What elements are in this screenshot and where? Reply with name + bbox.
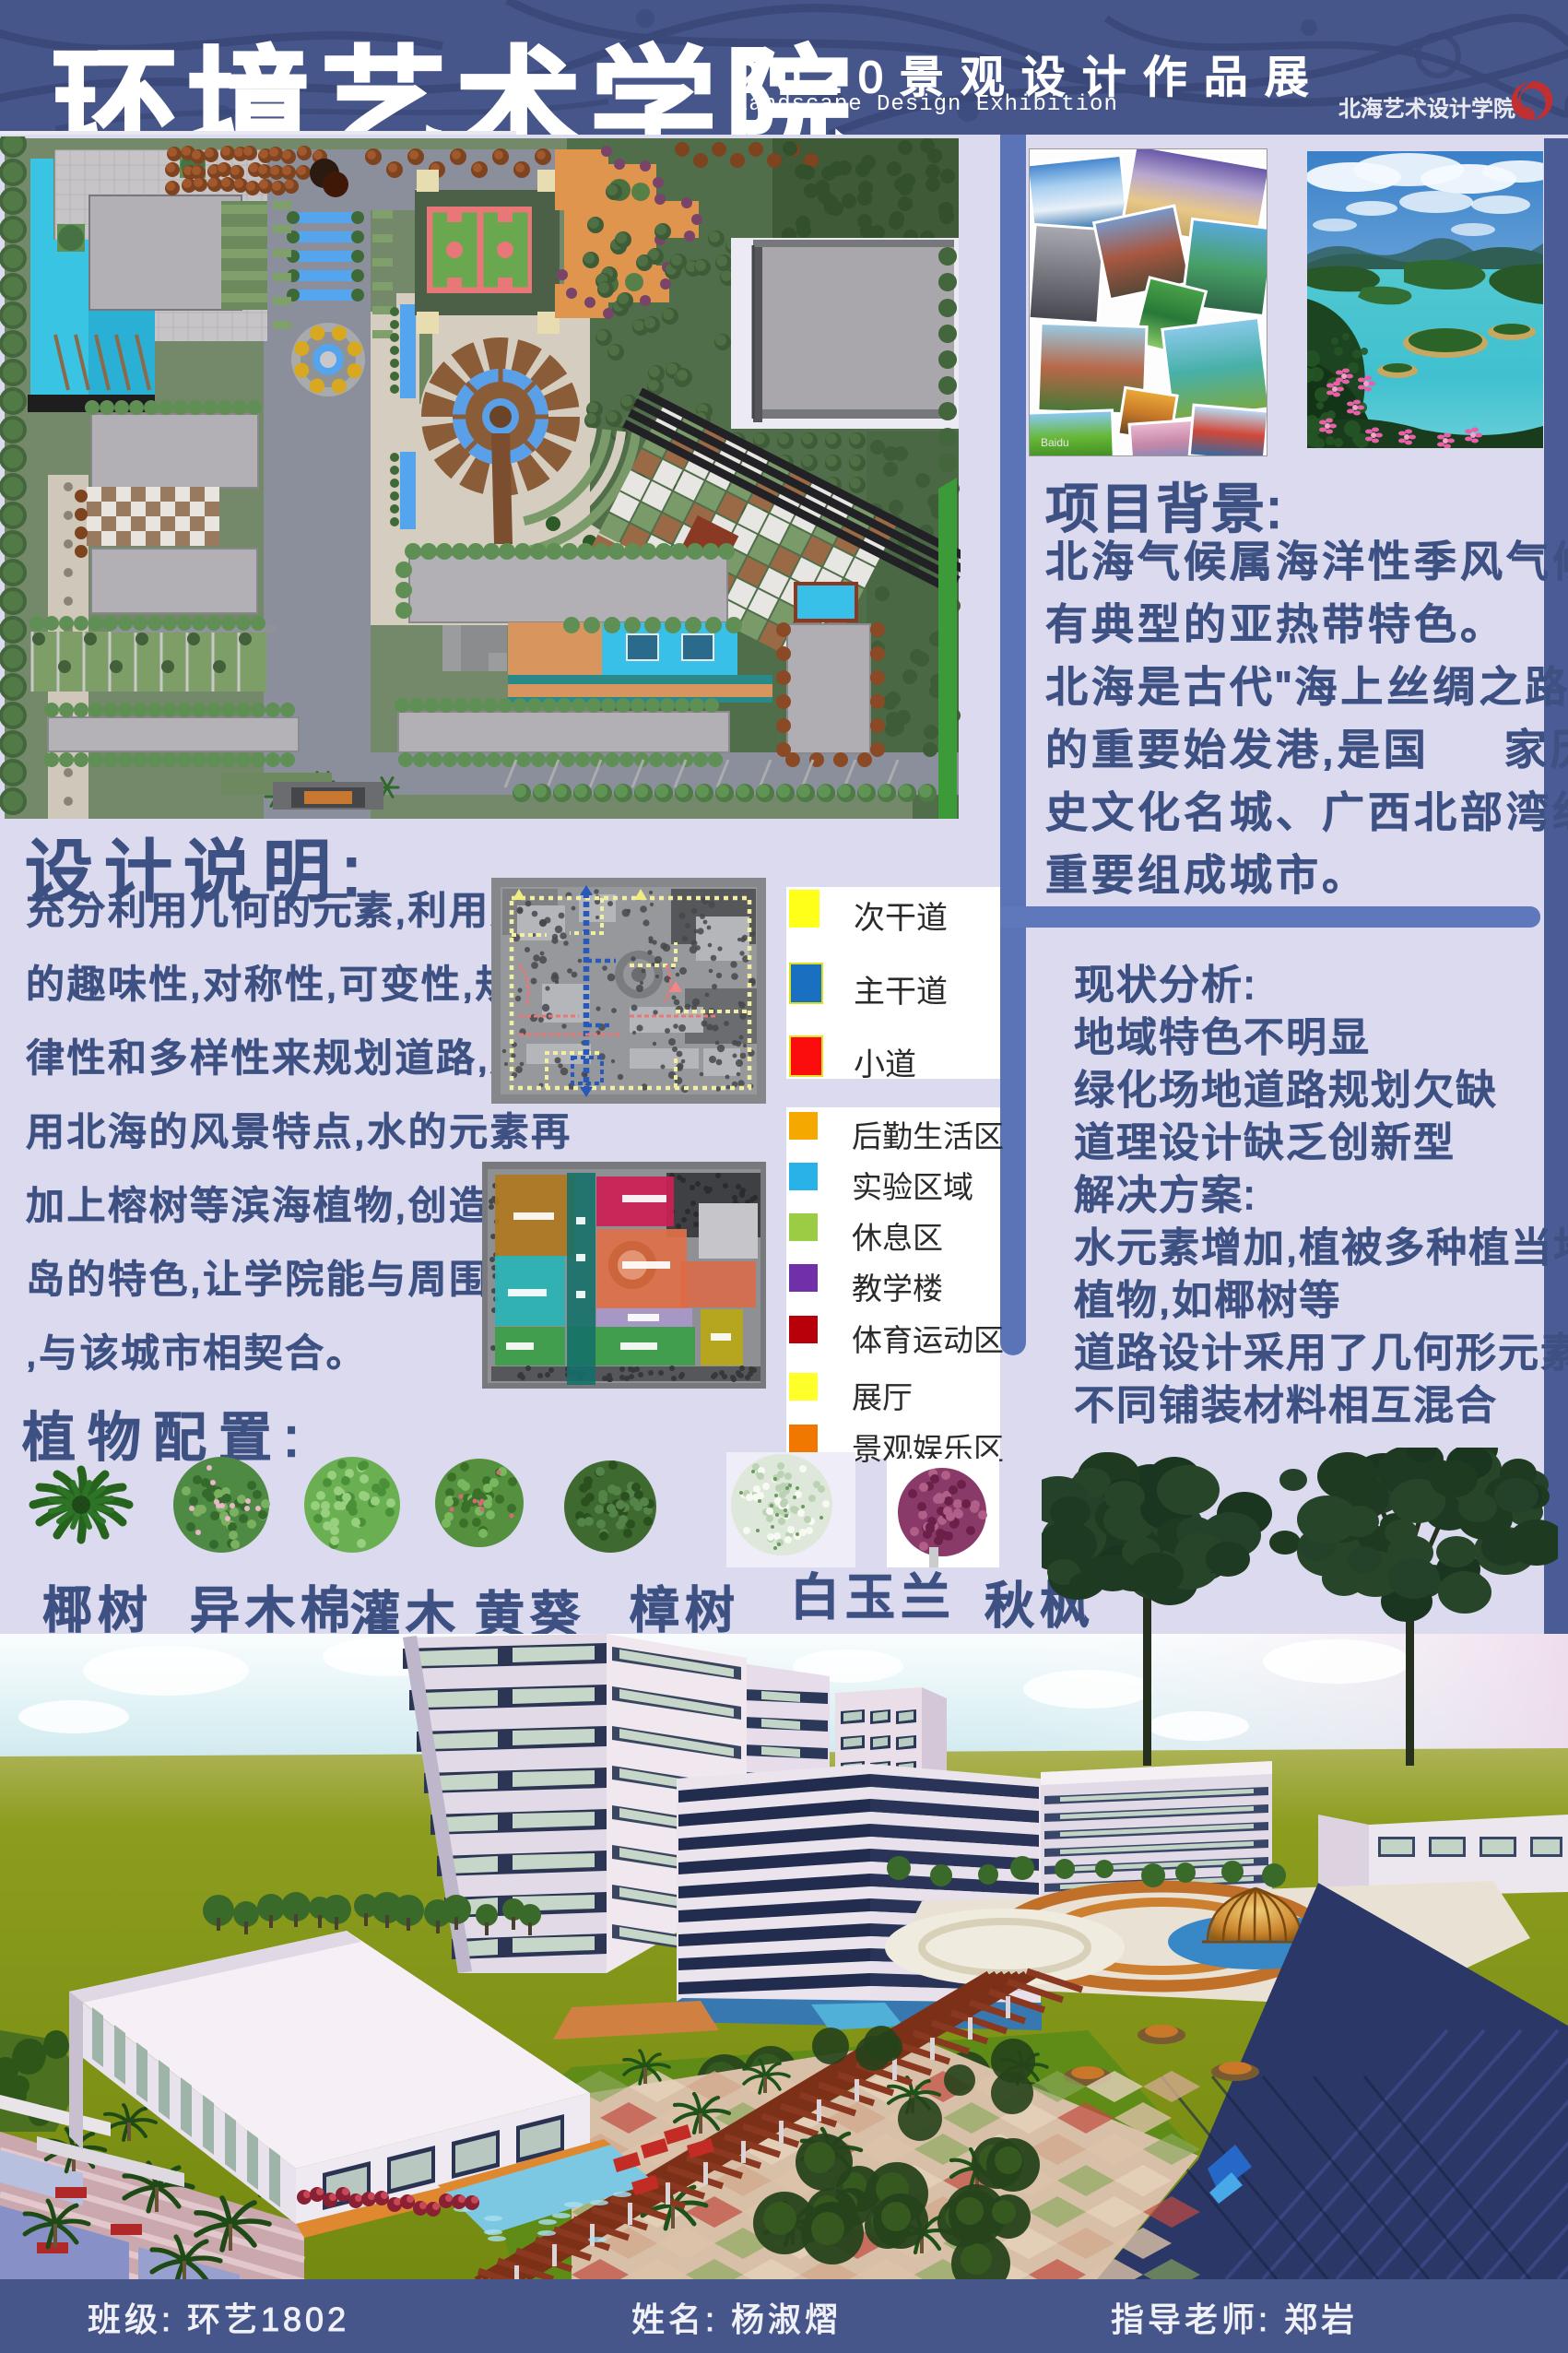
svg-text:Baidu: Baidu: [1041, 436, 1069, 449]
